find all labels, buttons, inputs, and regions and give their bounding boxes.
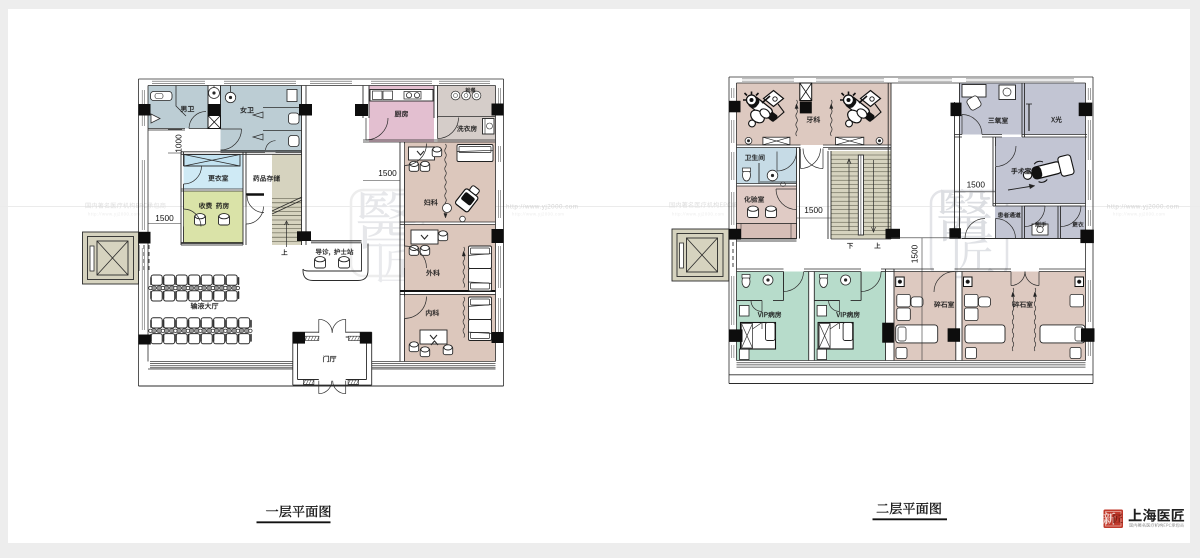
svg-text:http://www.yj2000.com: http://www.yj2000.com (672, 212, 724, 217)
svg-text:1500: 1500 (910, 244, 920, 263)
svg-text:1500: 1500 (378, 168, 397, 178)
svg-text:1500: 1500 (967, 180, 986, 190)
svg-text:http://www.yj2000.com: http://www.yj2000.com (506, 204, 578, 211)
svg-text:1500: 1500 (804, 205, 823, 215)
svg-text:http://www.yj2000.com: http://www.yj2000.com (1113, 212, 1165, 217)
svg-text:http://www.yj2000.com: http://www.yj2000.com (512, 212, 564, 217)
svg-text:1000: 1000 (174, 134, 184, 153)
svg-text:http://www.yj2000.com: http://www.yj2000.com (88, 212, 140, 217)
svg-text:http://www.yj2000.com: http://www.yj2000.com (1107, 204, 1179, 211)
svg-text:1500: 1500 (155, 213, 174, 223)
